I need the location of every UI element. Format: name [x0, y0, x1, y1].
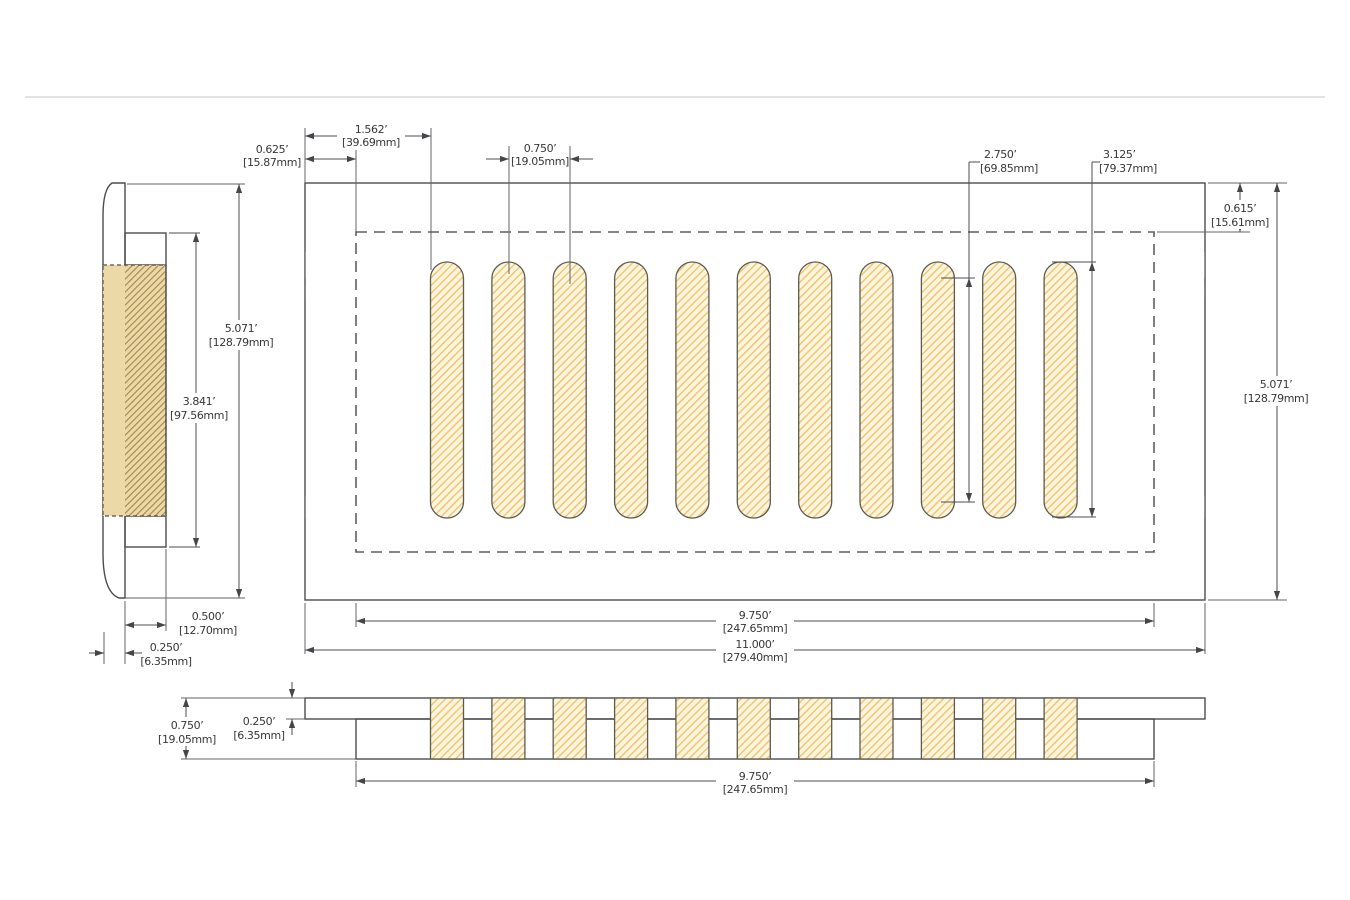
dim-label-mm: [39.69mm] — [342, 136, 400, 149]
top-plan-view — [305, 183, 1205, 600]
slot-stripes — [431, 698, 1078, 759]
dim-label-mm: [15.61mm] — [1211, 216, 1269, 229]
dim-label-mm: [247.65mm] — [723, 622, 788, 635]
slot — [799, 262, 832, 518]
dim-plate-thickness-section: 0.250’ [6.35mm] — [233, 682, 305, 742]
dim-label-mm: [15.87mm] — [243, 156, 301, 169]
dim-label-in: 5.071’ — [225, 322, 258, 335]
dim-label-in: 1.562’ — [355, 123, 388, 136]
duct-collar-top — [125, 233, 166, 265]
dim-label-in: 0.750’ — [524, 142, 557, 155]
dim-label-mm: [69.85mm] — [980, 162, 1038, 175]
slot-stripe — [860, 698, 893, 759]
dim-label-mm: [19.05mm] — [511, 155, 569, 168]
slot-stripe — [492, 698, 525, 759]
duct-collar-bottom — [125, 516, 166, 547]
dim-label-in: 0.750’ — [171, 719, 204, 732]
dim-label-in: 5.071’ — [1260, 378, 1293, 391]
slot — [615, 262, 648, 518]
dim-label-mm: [6.35mm] — [140, 655, 191, 668]
dim-label-in: 2.750’ — [984, 148, 1017, 161]
dim-faceplate-thickness-side: 0.250’ [6.35mm] — [89, 632, 192, 668]
dim-label-mm: [128.79mm] — [1244, 392, 1309, 405]
dim-label-in: 0.250’ — [243, 715, 276, 728]
section-view — [305, 698, 1205, 759]
dim-edge-to-duct-vertical: 0.615’ [15.61mm] — [1157, 183, 1287, 232]
slot-stripe — [431, 698, 464, 759]
dim-label-mm: [12.70mm] — [179, 624, 237, 637]
dim-label-in: 3.125’ — [1103, 148, 1136, 161]
dim-edge-to-duct: 0.625’ [15.87mm] — [243, 143, 356, 232]
hidden-duct-hatch — [125, 265, 166, 516]
slot — [860, 262, 893, 518]
dim-label-mm: [97.56mm] — [170, 409, 228, 422]
dim-duct-width-top: 9.750’ [247.65mm] — [356, 603, 1154, 635]
slot — [737, 262, 770, 518]
dim-label-mm: [79.37mm] — [1099, 162, 1157, 175]
slot-stripe — [921, 698, 954, 759]
dim-label-mm: [279.40mm] — [723, 651, 788, 664]
dim-label-in: 0.615’ — [1224, 202, 1257, 215]
slot-stripe — [799, 698, 832, 759]
dim-label-in: 9.750’ — [739, 770, 772, 783]
slot — [921, 262, 954, 518]
slot-stripe — [983, 698, 1016, 759]
dim-duct-length-side: 3.841’ [97.56mm] — [169, 233, 229, 547]
dim-label-mm: [128.79mm] — [209, 336, 274, 349]
drawing-page: 1.562’ [39.69mm] 0.625’ [15.87mm] 0.750’… — [0, 0, 1350, 900]
slot-stripe — [1044, 698, 1077, 759]
slots — [431, 262, 1078, 518]
dim-overall-height-right: 5.071’ [128.79mm] — [1208, 183, 1309, 600]
technical-drawing-svg: 1.562’ [39.69mm] 0.625’ [15.87mm] 0.750’… — [0, 0, 1350, 900]
side-profile-view — [103, 183, 166, 598]
dim-label-in: 0.250’ — [150, 641, 183, 654]
slot-stripe — [737, 698, 770, 759]
dim-label-in: 9.750’ — [739, 609, 772, 622]
hidden-duct-left-strip — [103, 265, 125, 516]
dim-label-in: 3.841’ — [183, 395, 216, 408]
slot — [431, 262, 464, 518]
dim-label-mm: [247.65mm] — [723, 783, 788, 796]
slot — [492, 262, 525, 518]
dim-edge-to-first-slot: 1.562’ [39.69mm] — [305, 122, 431, 270]
dim-label-in: 0.500’ — [192, 610, 225, 623]
slot-stripe — [553, 698, 586, 759]
slot — [1044, 262, 1077, 518]
dim-label-mm: [19.05mm] — [158, 733, 216, 746]
slot — [553, 262, 586, 518]
dim-label-mm: [6.35mm] — [233, 729, 284, 742]
slot-stripe — [676, 698, 709, 759]
dim-duct-width-section: 9.750’ [247.65mm] — [356, 761, 1154, 796]
dim-label-in: 0.625’ — [256, 143, 289, 156]
slot-stripe — [615, 698, 648, 759]
slot — [676, 262, 709, 518]
slot — [983, 262, 1016, 518]
dim-label-in: 11.000’ — [735, 638, 774, 651]
